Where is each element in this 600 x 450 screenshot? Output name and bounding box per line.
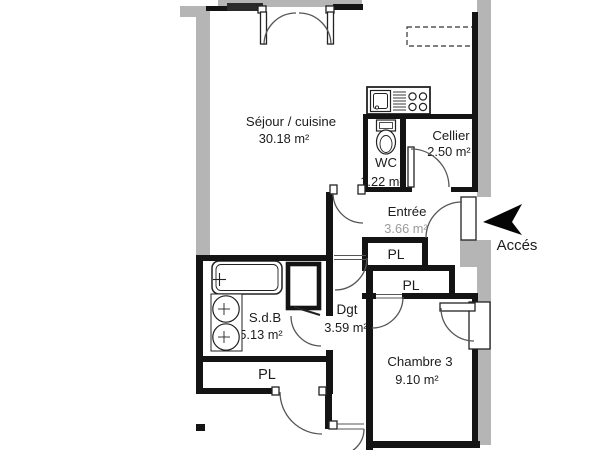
chambre3-window	[440, 302, 490, 349]
drainboard-hatch	[393, 92, 406, 110]
duct-box	[288, 264, 319, 308]
entree-area-label: 3.66 m²	[384, 221, 428, 236]
dashed-overhead-cabinet	[407, 27, 477, 46]
sdb-area-label: 5.13 m²	[239, 327, 283, 342]
bottom-left-door	[272, 387, 326, 434]
chambre3-door	[372, 295, 403, 329]
closet-pl1-label: PL	[387, 246, 404, 262]
right-gray-wall-bottom	[477, 267, 491, 445]
closet-pl3-label: PL	[258, 367, 276, 383]
left-gray-wall	[196, 6, 210, 258]
entry-gray-block	[460, 240, 491, 267]
bathtub-icon	[212, 261, 282, 294]
washbasin-icon	[213, 296, 239, 322]
sdb-door	[291, 307, 321, 346]
dgt-area-label: 3.59 m²	[324, 320, 368, 335]
masonry-gray-walls	[180, 0, 491, 445]
wc-name-label: WC	[375, 155, 397, 170]
floor-plan: Séjour / cuisine 30.18 m² WC 1.22 m² Cel…	[0, 0, 600, 450]
right-gray-wall-top	[477, 0, 491, 197]
sejour-name-label: Séjour / cuisine	[246, 114, 336, 129]
entrance-gap	[477, 197, 491, 240]
french-door	[258, 6, 334, 45]
access-marker: Accés	[483, 204, 537, 254]
entree-name-label: Entrée	[388, 204, 427, 219]
dgt-bottom-door	[329, 421, 364, 450]
sdb-name-label: S.d.B	[249, 310, 281, 325]
floor-plan-canvas: Séjour / cuisine 30.18 m² WC 1.22 m² Cel…	[0, 0, 600, 450]
room-labels: Séjour / cuisine 30.18 m² WC 1.22 m² Cel…	[239, 114, 471, 387]
sink-icon	[371, 91, 391, 112]
chambre3-name-label: Chambre 3	[387, 354, 452, 369]
dgt-name-label: Dgt	[336, 302, 357, 317]
access-label: Accés	[497, 237, 538, 254]
kitchen-counter	[367, 87, 430, 114]
chambre3-area-label: 9.10 m²	[395, 372, 439, 387]
sejour-entree-door	[330, 185, 365, 223]
doors-and-openings	[258, 6, 491, 450]
sejour-area-label: 30.18 m²	[259, 131, 310, 146]
closet-pl2-label: PL	[402, 277, 419, 293]
toilet-icon	[377, 120, 396, 154]
cellier-name-label: Cellier	[432, 128, 470, 143]
entrance-door	[426, 197, 491, 240]
washbasin-icon	[213, 324, 239, 350]
washbasin-counter	[211, 294, 242, 351]
